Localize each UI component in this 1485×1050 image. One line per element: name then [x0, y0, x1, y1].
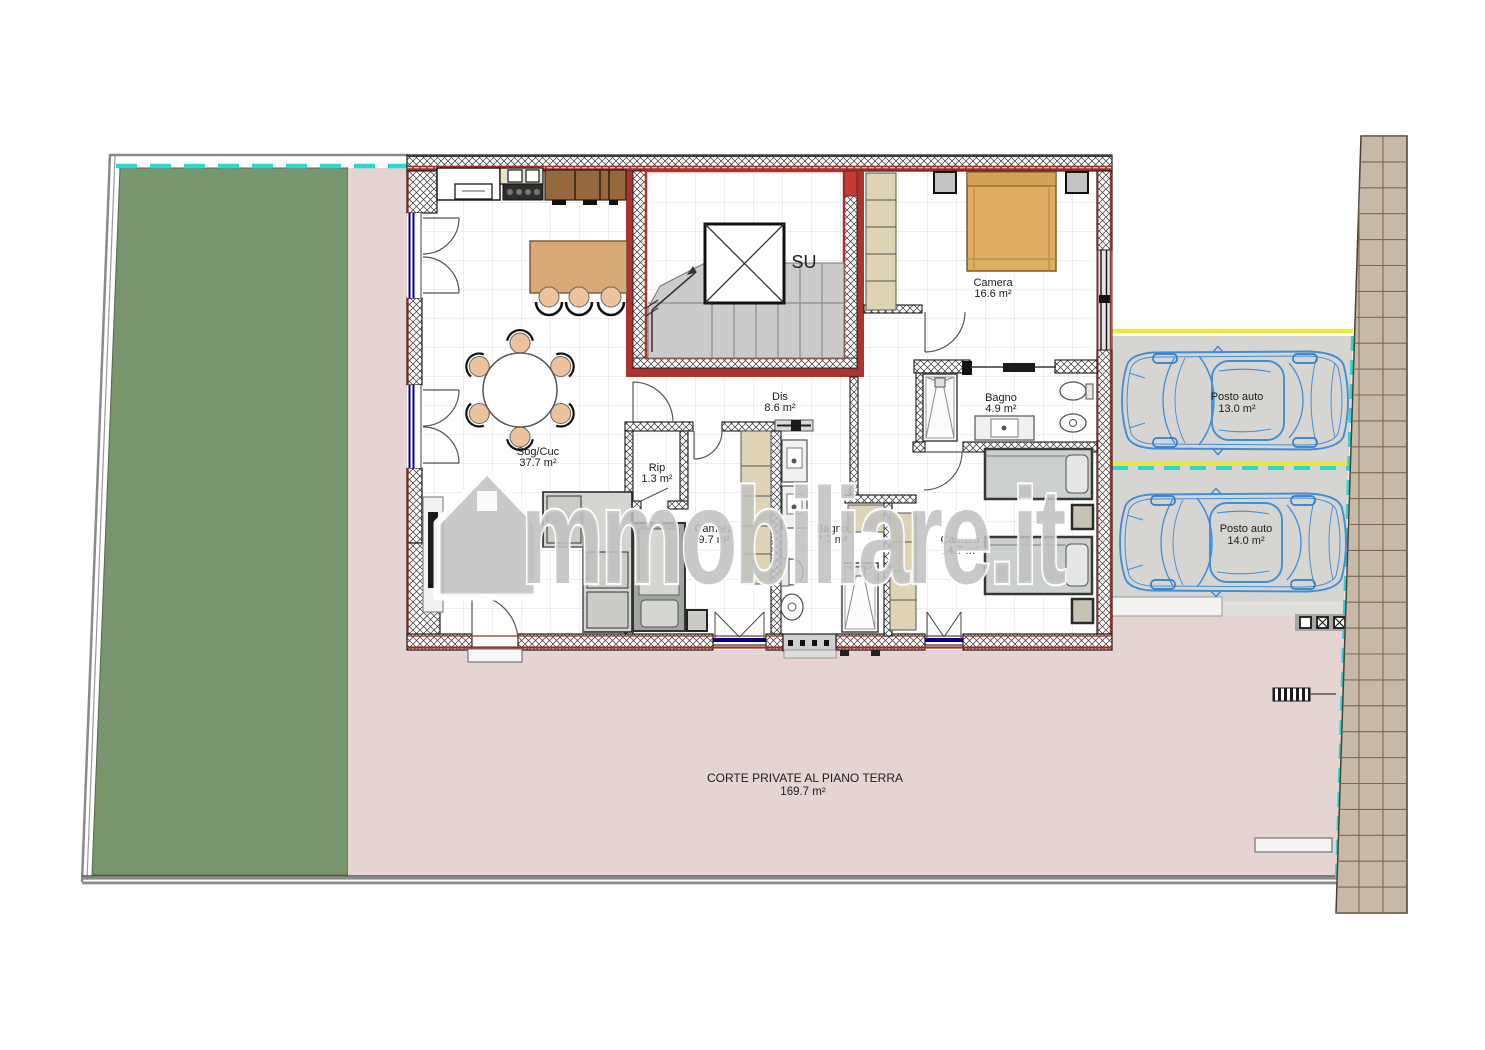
- svg-text:14.0 m²: 14.0 m²: [1227, 535, 1265, 547]
- svg-text:mmobiliare.it: mmobiliare.it: [521, 460, 1066, 612]
- svg-text:Posto auto: Posto auto: [1211, 391, 1264, 403]
- svg-text:8.6 m²: 8.6 m²: [764, 402, 796, 414]
- svg-text:16.6 m²: 16.6 m²: [974, 288, 1012, 300]
- svg-text:Posto auto: Posto auto: [1220, 523, 1273, 535]
- svg-text:169.7 m²: 169.7 m²: [780, 786, 826, 798]
- svg-text:4.9 m²: 4.9 m²: [985, 403, 1017, 415]
- svg-text:13.0 m²: 13.0 m²: [1218, 403, 1256, 415]
- svg-text:CORTE PRIVATE AL PIANO TERRA: CORTE PRIVATE AL PIANO TERRA: [707, 771, 903, 785]
- svg-text:SU: SU: [791, 252, 816, 272]
